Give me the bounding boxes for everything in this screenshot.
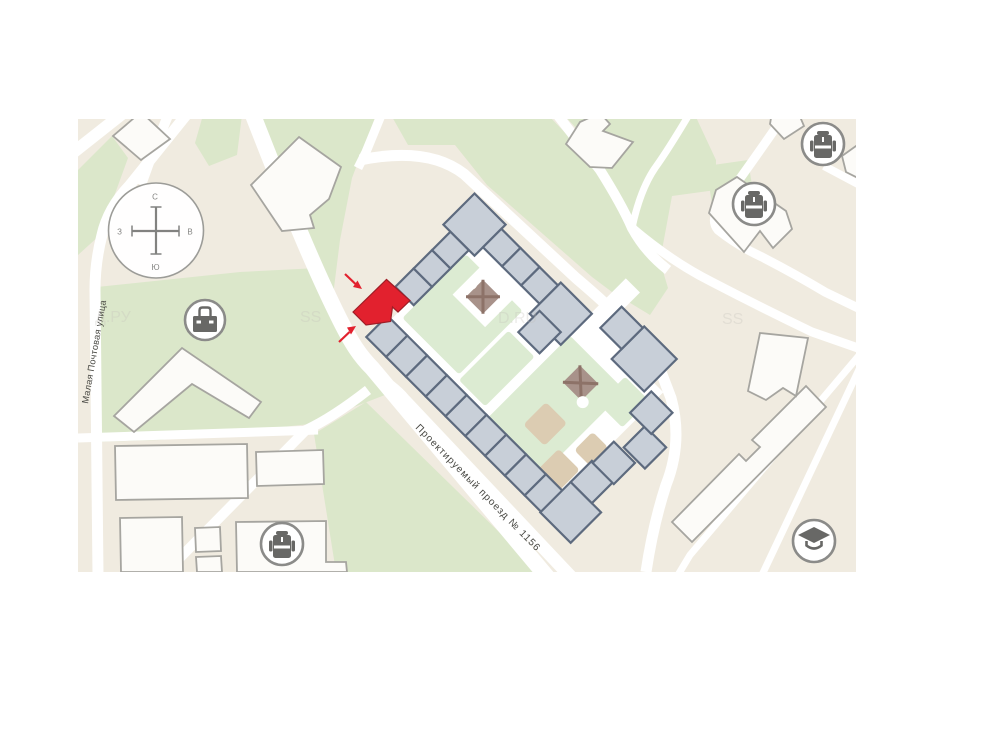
svg-text:Д.РУ: Д.РУ [95,309,132,326]
svg-text:SS: SS [722,311,743,328]
svg-text:С: С [152,193,158,202]
svg-text:З: З [117,228,122,237]
svg-text:В: В [187,228,192,237]
svg-text:D.RU: D.RU [498,310,537,327]
svg-text:Ю: Ю [151,263,159,272]
svg-text:SS: SS [300,309,321,326]
